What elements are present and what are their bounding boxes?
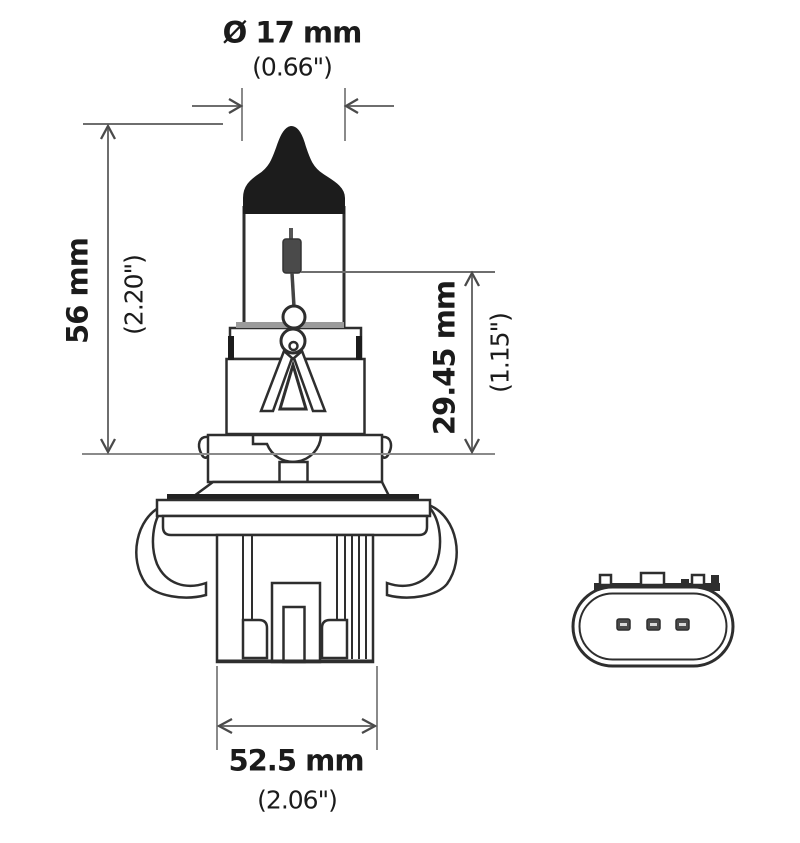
plug-body: [217, 535, 373, 662]
connector-face-view: [573, 573, 733, 666]
base-width-imperial-label: (2.06"): [257, 788, 337, 813]
base-width-metric-label: 52.5 mm: [228, 747, 363, 776]
diameter-metric-label: Ø 17 mm: [223, 19, 362, 48]
painted-tip: [244, 127, 344, 213]
bulb-technical-drawing: Ø 17 mm (0.66") 56 mm (2.20") 29.45 mm (…: [0, 0, 800, 843]
linework-svg: [0, 0, 800, 843]
light-center-imperial-label: (1.15"): [488, 313, 513, 393]
bulb-side-view: [136, 127, 456, 662]
base-collar: [199, 435, 391, 482]
filament-assembly: [283, 228, 305, 328]
diameter-imperial-label: (0.66"): [252, 55, 332, 80]
light-center-metric-label: 29.45 mm: [431, 281, 460, 435]
dimension-base-width: [217, 666, 377, 750]
overall-length-metric-label: 56 mm: [64, 238, 93, 344]
connector-pins: [617, 619, 689, 630]
overall-length-imperial-label: (2.20"): [122, 255, 147, 335]
